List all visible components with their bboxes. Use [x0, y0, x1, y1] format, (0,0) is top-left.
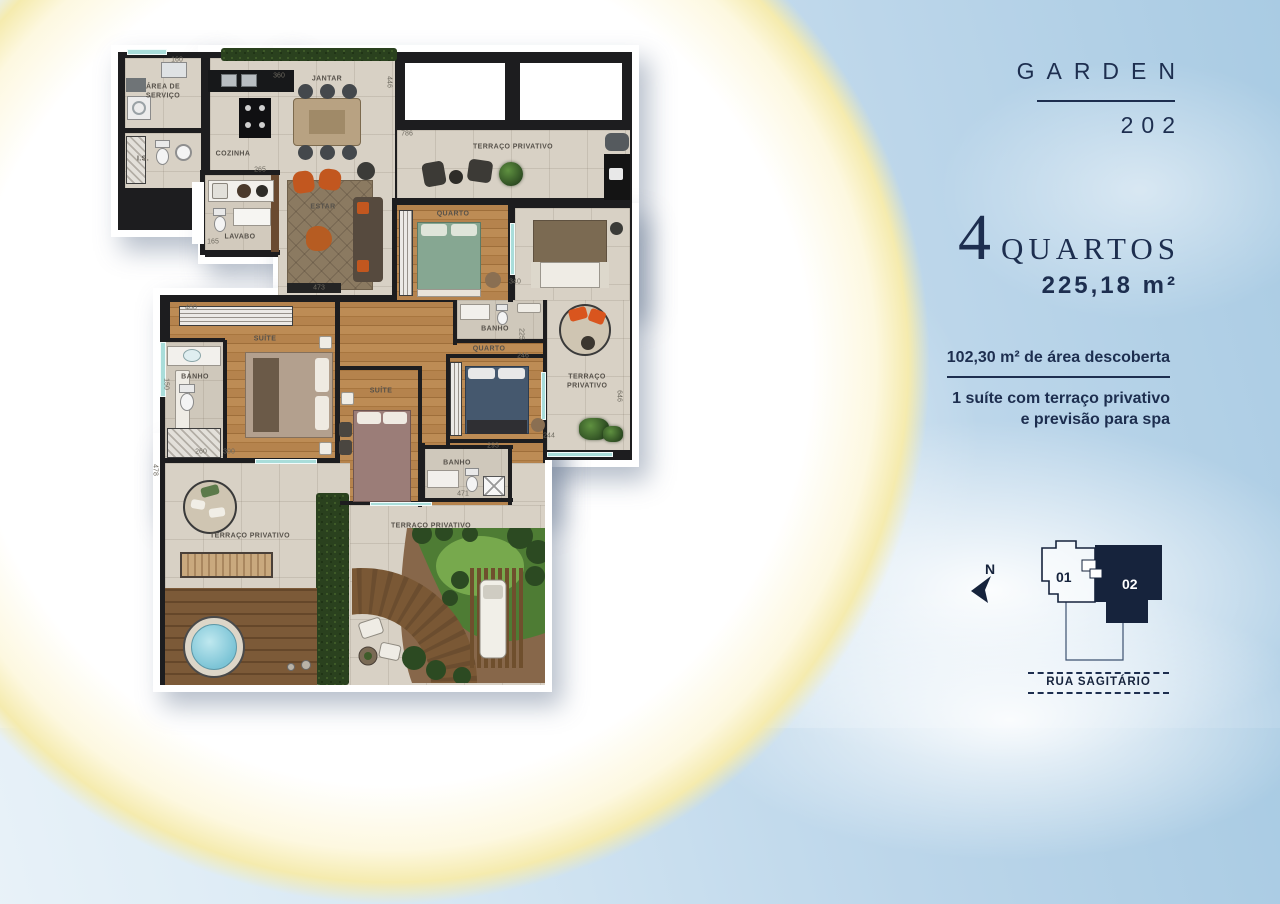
street-dash-top [1028, 672, 1169, 674]
dimension-label: 360 [273, 73, 285, 80]
dimension-label: 165 [207, 239, 219, 246]
dimension-label: 300 [223, 449, 235, 456]
keyplan-unit02-label: 02 [1122, 576, 1138, 592]
unit-number: 202 [1121, 112, 1183, 139]
plan-title: GARDEN [1017, 58, 1187, 85]
keyplan: 01 02 [1018, 532, 1178, 667]
dimension-label: 293 [487, 443, 499, 450]
dimension-label: 478 [152, 464, 159, 476]
street-name: RUA SAGITÁRIO [1028, 676, 1169, 688]
dimension-label: 260 [195, 449, 207, 456]
dimension-label: 646 [616, 390, 623, 402]
dimension-layer: 1603604467862651654734601502603004783402… [113, 40, 640, 696]
dimension-label: 246 [517, 353, 529, 360]
compass-north-label: N [985, 561, 995, 577]
keyplan-notch [1090, 569, 1102, 578]
dimension-label: 225 [518, 328, 525, 340]
street-dash-bottom [1028, 692, 1169, 694]
compass: N [961, 554, 1007, 610]
keyplan-unit01-label: 01 [1056, 569, 1072, 585]
bedrooms-number: 4 [958, 205, 991, 271]
dimension-label: 471 [457, 491, 469, 498]
dimension-label: 160 [171, 57, 183, 64]
dimension-label: 244 [543, 433, 555, 440]
title-rule [1037, 100, 1175, 102]
feature-line-1: 1 suíte com terraço privativo [952, 390, 1170, 408]
uncovered-area: 102,30 m² de área descoberta [947, 349, 1170, 367]
bedrooms-line: 4 QUARTOS [958, 205, 1175, 271]
dimension-label: 265 [254, 167, 266, 174]
area-rule [947, 376, 1170, 378]
dimension-label: 460 [185, 305, 197, 312]
feature-line-2: e previsão para spa [1021, 411, 1170, 429]
total-area: 225,18 m² [1042, 272, 1178, 300]
floor-plan: ÁREA DE SERVIÇO I.S. COZINHA JANTAR LAVA… [113, 40, 640, 696]
dimension-label: 446 [386, 76, 393, 88]
dimension-label: 340 [509, 279, 521, 286]
dimension-label: 150 [163, 378, 170, 390]
dimension-label: 473 [313, 285, 325, 292]
dimension-label: 786 [401, 131, 413, 138]
compass-needle-icon [971, 576, 991, 603]
bedrooms-label: QUARTOS [1001, 231, 1180, 267]
